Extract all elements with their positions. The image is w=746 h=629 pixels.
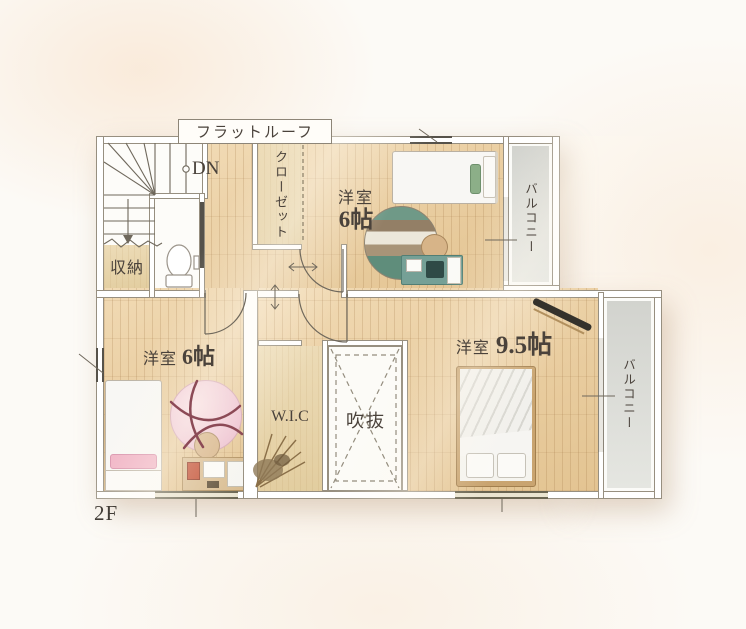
bed-double-pillow-2 — [497, 453, 526, 478]
wall-right-lower — [654, 292, 662, 499]
bed-top-pillow — [483, 156, 496, 198]
bed-top-green-blanket — [470, 164, 481, 194]
flat-roof-text: フラットルーフ — [196, 121, 314, 142]
building: フラットルーフ DN 収納 クローゼット 洋室 6帖 洋室 6帖 洋室 9.5帖… — [0, 0, 746, 629]
bed-double-pillow-1 — [466, 453, 494, 478]
wall-wic-top-1 — [258, 340, 302, 346]
wall-left — [96, 136, 104, 499]
bedroom-top-size: 6帖 — [339, 207, 374, 232]
bedroom-main-label: 洋室 9.5帖 — [448, 325, 560, 355]
floor-2f-label: 2F — [94, 501, 118, 526]
desk-left-red-item — [187, 462, 200, 480]
desk-left-paper — [203, 461, 225, 478]
bedroom-top-name: 洋室 — [338, 190, 374, 208]
wall-door-post — [341, 244, 347, 298]
chair-left — [194, 432, 220, 459]
storage-label: 収納 — [104, 256, 150, 276]
bed-left-pillow-pink — [110, 454, 157, 469]
wall-mid-c — [347, 290, 662, 298]
window-bottom-main-bedroom — [455, 491, 548, 499]
desk-top-laptop — [406, 259, 422, 272]
bed-left-footboard — [105, 470, 162, 491]
sliding-door-balcony-right — [598, 338, 604, 452]
window-top-bedroom — [410, 136, 452, 144]
bedroom-left-name: 洋室 — [143, 345, 177, 369]
floorplan-page: { "floorplan": { "floor_label": "2F", "r… — [0, 0, 746, 629]
wall-wic-void — [322, 340, 328, 491]
toilet-door-panel — [200, 202, 204, 268]
wall-toilet-top — [149, 193, 205, 199]
wall-bedroom-wic — [243, 290, 258, 499]
wall-closet-left — [252, 136, 258, 250]
wall-right-upper — [552, 136, 560, 298]
desk-top-shelf — [447, 257, 461, 284]
wall-void-right — [402, 340, 408, 491]
flat-roof-label: フラットルーフ — [178, 119, 332, 144]
sliding-door-balcony-top — [503, 197, 509, 281]
bedroom-left-label: 洋室 6帖 — [134, 339, 224, 365]
balcony-right-label: バルコニー — [619, 358, 638, 440]
bedroom-main-size: 9.5帖 — [496, 325, 552, 361]
bedroom-left-size: 6帖 — [182, 339, 215, 371]
bedroom-main-name: 洋室 — [456, 334, 490, 358]
wall-wic-top-2 — [324, 340, 408, 346]
stairs-dn-label: DN — [192, 158, 219, 180]
void-label: 吹抜 — [340, 409, 392, 431]
wall-toilet-left — [149, 193, 155, 298]
bedroom-top-label: 洋室 6帖 — [316, 186, 396, 236]
floor-toilet — [155, 199, 199, 290]
desk-left-dark-item — [207, 481, 219, 488]
window-left-bedroom — [96, 348, 104, 382]
balcony-top-label: バルコニー — [521, 182, 540, 264]
wall-balcony-top-rail — [503, 285, 560, 291]
closet-label: クローゼット — [271, 150, 290, 248]
desk-top-dark-item — [426, 261, 444, 278]
window-bottom-left-bedroom — [155, 491, 238, 499]
wic-label: W.I.C — [263, 407, 317, 427]
